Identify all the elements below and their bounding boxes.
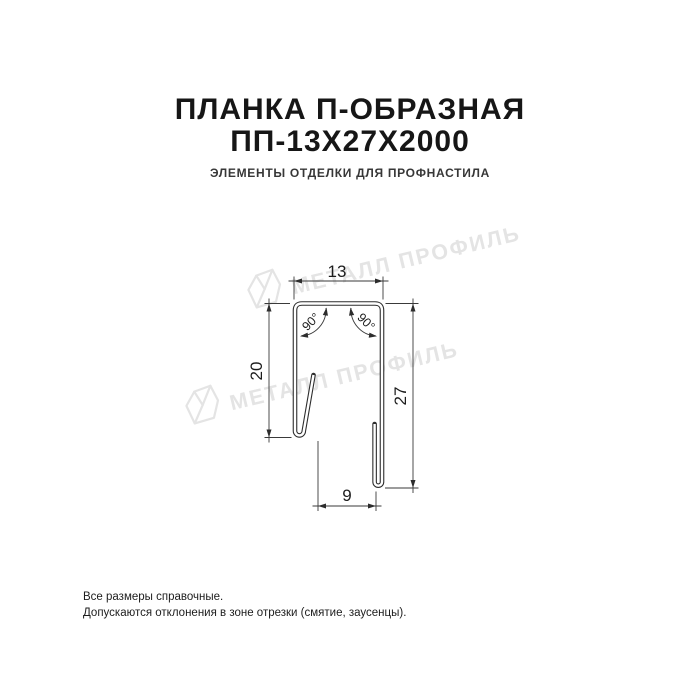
metall-profil-logo-icon <box>183 385 222 425</box>
dimension-arrow-icon <box>375 279 383 284</box>
dimension-arrow-icon <box>318 504 326 509</box>
dimension-arrow-icon <box>368 504 376 509</box>
watermark-text: МЕТАЛЛ ПРОФИЛЬ <box>289 221 523 299</box>
footnote-line2: Допускаются отклонения в зоне отрезки (с… <box>83 605 406 621</box>
dimension-right-height: 27 <box>385 299 419 494</box>
dimension-label-27: 27 <box>391 387 410 406</box>
footnote: Все размеры справочные. Допускаются откл… <box>83 589 406 621</box>
dimension-label-20: 20 <box>247 362 266 381</box>
angle-annotation-left: 90° <box>299 307 329 339</box>
angle-label-left: 90° <box>299 310 322 333</box>
angle-arrow-icon <box>369 333 378 339</box>
dimension-arrow-icon <box>267 430 272 438</box>
dimension-label-13: 13 <box>328 262 347 281</box>
watermark-top: МЕТАЛЛ ПРОФИЛЬ <box>245 211 523 309</box>
dimension-bottom-width: 9 <box>313 441 382 511</box>
footnote-line1: Все размеры справочные. <box>83 589 406 605</box>
metall-profil-logo-icon <box>245 269 284 309</box>
dimension-left-height: 20 <box>247 299 292 443</box>
angle-annotation-right: 90° <box>348 307 378 339</box>
dimension-label-9: 9 <box>342 486 351 505</box>
dimension-arrow-icon <box>411 304 416 312</box>
watermark-middle: МЕТАЛЛ ПРОФИЛЬ <box>183 327 461 425</box>
dimension-arrow-icon <box>411 480 416 488</box>
angle-arrow-icon <box>300 333 309 339</box>
angle-label-right: 90° <box>354 310 377 333</box>
